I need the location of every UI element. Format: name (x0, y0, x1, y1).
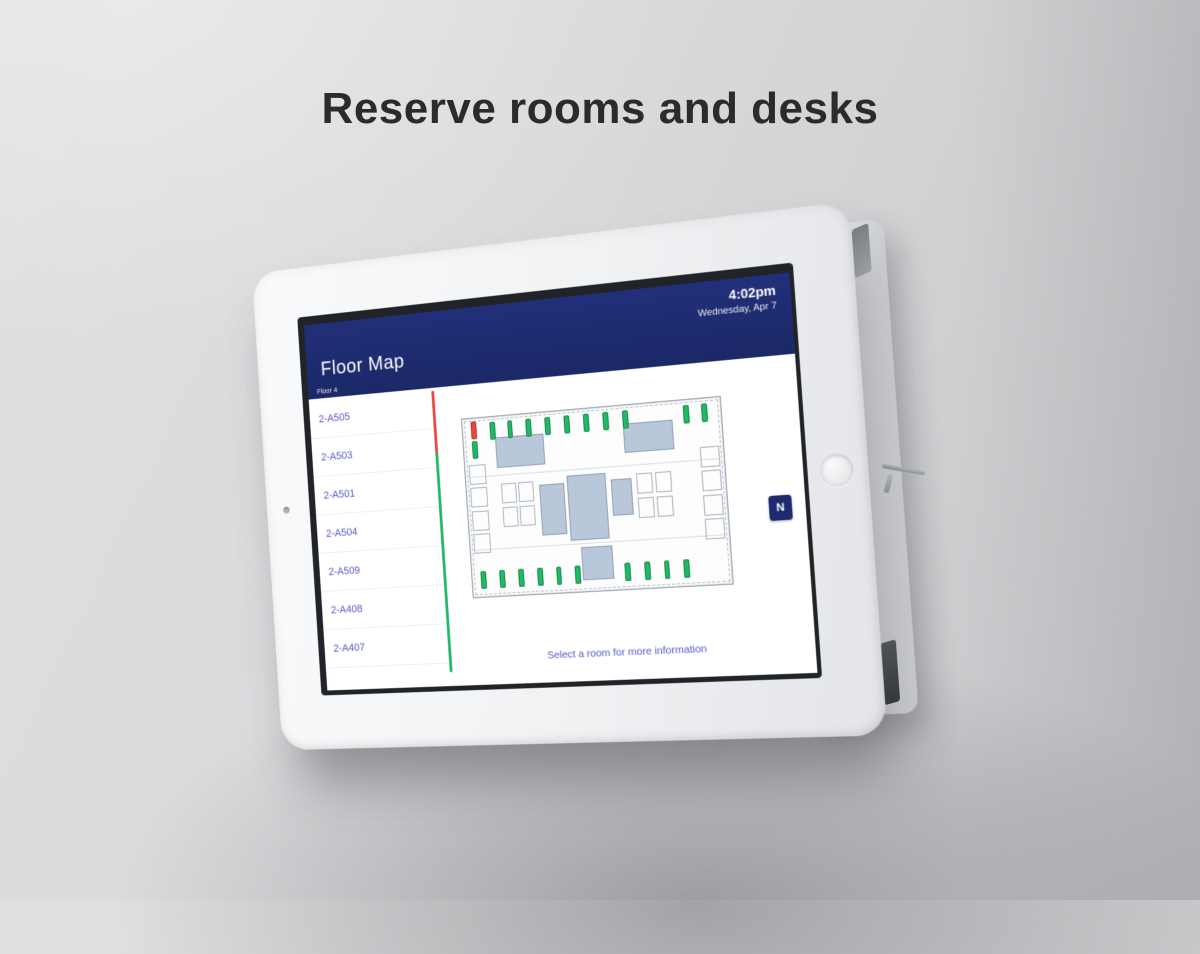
office-room[interactable] (700, 445, 720, 467)
desk-status-marker[interactable] (624, 563, 631, 582)
desk-status-marker[interactable] (544, 417, 551, 436)
desk-status-marker[interactable] (602, 412, 609, 431)
room-name: 2-A505 (318, 411, 350, 425)
desk-status-marker[interactable] (472, 441, 479, 459)
office-room[interactable] (655, 471, 672, 492)
clock: 4:02pm Wednesday, Apr 7 (696, 282, 777, 319)
floor-label[interactable]: Floor 4 (317, 385, 338, 396)
floor-map (461, 395, 734, 598)
office-room[interactable] (470, 487, 489, 508)
screen-bezel: Floor Map 4:02pm Wednesday, Apr 7 Floor … (297, 263, 822, 696)
desk-status-marker[interactable] (644, 562, 651, 581)
kiosk-screen: Floor Map 4:02pm Wednesday, Apr 7 Floor … (304, 272, 818, 690)
room-name: 2-A501 (323, 487, 355, 501)
desk-status-marker[interactable] (622, 410, 629, 429)
corridor-line (475, 535, 723, 551)
office-room[interactable] (702, 469, 722, 491)
desk-status-marker[interactable] (664, 560, 671, 579)
office-room[interactable] (473, 533, 492, 554)
camera-icon (283, 506, 289, 513)
office-room[interactable] (703, 494, 723, 516)
office-room[interactable] (471, 510, 490, 531)
desk-status-marker[interactable] (471, 421, 478, 439)
sidebar-room-item[interactable]: 2-A407 (323, 624, 449, 668)
sidebar-room-item[interactable]: 2-A408 (321, 585, 447, 630)
desk-status-marker[interactable] (701, 403, 708, 422)
desk-status-marker[interactable] (575, 566, 582, 584)
desk-status-marker[interactable] (518, 569, 525, 587)
office-room[interactable] (520, 505, 536, 526)
desk-status-marker[interactable] (499, 570, 506, 588)
app-title: Floor Map (320, 313, 777, 381)
office-room[interactable] (468, 464, 487, 485)
office-room[interactable] (656, 495, 673, 516)
office-room[interactable] (705, 518, 725, 540)
office-room[interactable] (501, 483, 517, 504)
conference-room[interactable] (581, 545, 614, 580)
desk-status-marker[interactable] (537, 568, 544, 586)
clock-date: Wednesday, Apr 7 (697, 300, 777, 320)
desk-status-marker[interactable] (583, 414, 590, 433)
mount-hinge-top (851, 223, 871, 279)
desk-status-marker[interactable] (684, 559, 691, 578)
office-room[interactable] (638, 497, 655, 518)
conference-room[interactable] (495, 434, 545, 468)
room-name: 2-A503 (321, 449, 353, 463)
sidebar-room-item[interactable]: 2-A509 (319, 546, 445, 592)
office-room[interactable] (518, 482, 534, 503)
desk-status-marker[interactable] (480, 571, 487, 589)
conference-room[interactable] (539, 483, 568, 535)
conference-room[interactable] (566, 473, 609, 541)
conference-room[interactable] (622, 419, 674, 452)
compass-button[interactable]: N (768, 495, 793, 522)
desk-status-marker[interactable] (682, 405, 689, 424)
room-list: 2-A5052-A5032-A5012-A5042-A5092-A4082-A4… (309, 388, 451, 691)
room-name: 2-A407 (333, 641, 365, 654)
desk-status-marker[interactable] (563, 415, 570, 434)
desk-status-marker[interactable] (525, 418, 532, 436)
desk-status-marker[interactable] (556, 567, 563, 585)
room-name: 2-A504 (326, 526, 358, 540)
desk-status-marker[interactable] (507, 420, 514, 438)
office-room[interactable] (636, 473, 653, 494)
map-pane: N Select a room for more information (431, 354, 817, 686)
desk-status-marker[interactable] (489, 422, 496, 440)
map-hint-text: Select a room for more information (449, 638, 816, 665)
room-name: 2-A509 (328, 564, 360, 577)
kiosk-content: 2-A5052-A5032-A5012-A5042-A5092-A4082-A4… (309, 354, 818, 691)
conference-room[interactable] (611, 478, 634, 516)
office-room[interactable] (502, 506, 518, 527)
tablet-device: Floor Map 4:02pm Wednesday, Apr 7 Floor … (252, 201, 888, 750)
page-title: Reserve rooms and desks (0, 84, 1200, 134)
room-name: 2-A408 (331, 603, 363, 616)
clock-time: 4:02pm (696, 282, 776, 306)
tablet-enclosure: Floor Map 4:02pm Wednesday, Apr 7 Floor … (252, 201, 888, 750)
